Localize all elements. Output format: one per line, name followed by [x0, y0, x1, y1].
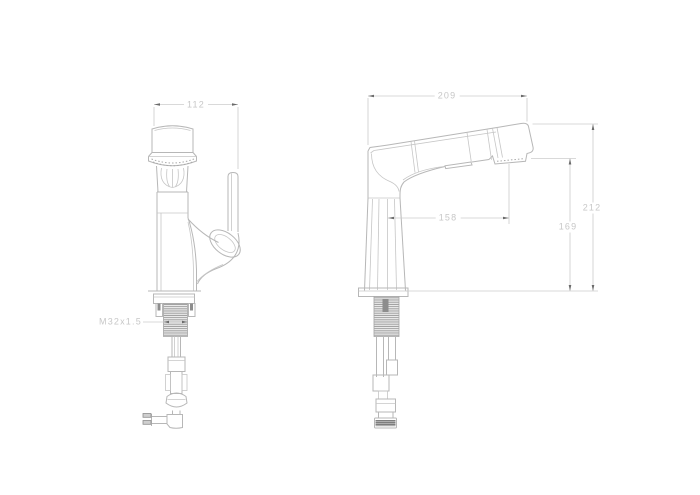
front-mounting — [148, 291, 201, 337]
side-mounting — [359, 288, 409, 337]
dim-label-side-length: 209 — [435, 91, 460, 102]
front-body — [157, 192, 197, 291]
dim-side-length — [368, 95, 527, 145]
side-hose-assembly — [373, 337, 398, 429]
front-threaded-shank — [164, 304, 188, 337]
dim-label-spout-reach: 158 — [436, 213, 461, 224]
side-view — [359, 123, 534, 428]
dim-overall-height — [406, 124, 598, 291]
faucet-drawing — [0, 0, 700, 495]
dim-label-overall-height: 212 — [580, 203, 605, 214]
front-hose-assembly — [143, 337, 187, 429]
dim-label-front-width: 112 — [184, 99, 208, 110]
technical-drawing-canvas: 112 209 158 169 212 M32x1.5 — [0, 0, 700, 495]
dim-label-thread-spec: M32x1.5 — [98, 317, 143, 328]
dim-label-outlet-height: 169 — [556, 221, 581, 232]
side-details — [370, 128, 525, 291]
front-view — [143, 126, 245, 429]
side-hose-end-band — [376, 420, 396, 426]
front-neck — [157, 166, 189, 192]
front-sprayer-head — [149, 126, 197, 166]
